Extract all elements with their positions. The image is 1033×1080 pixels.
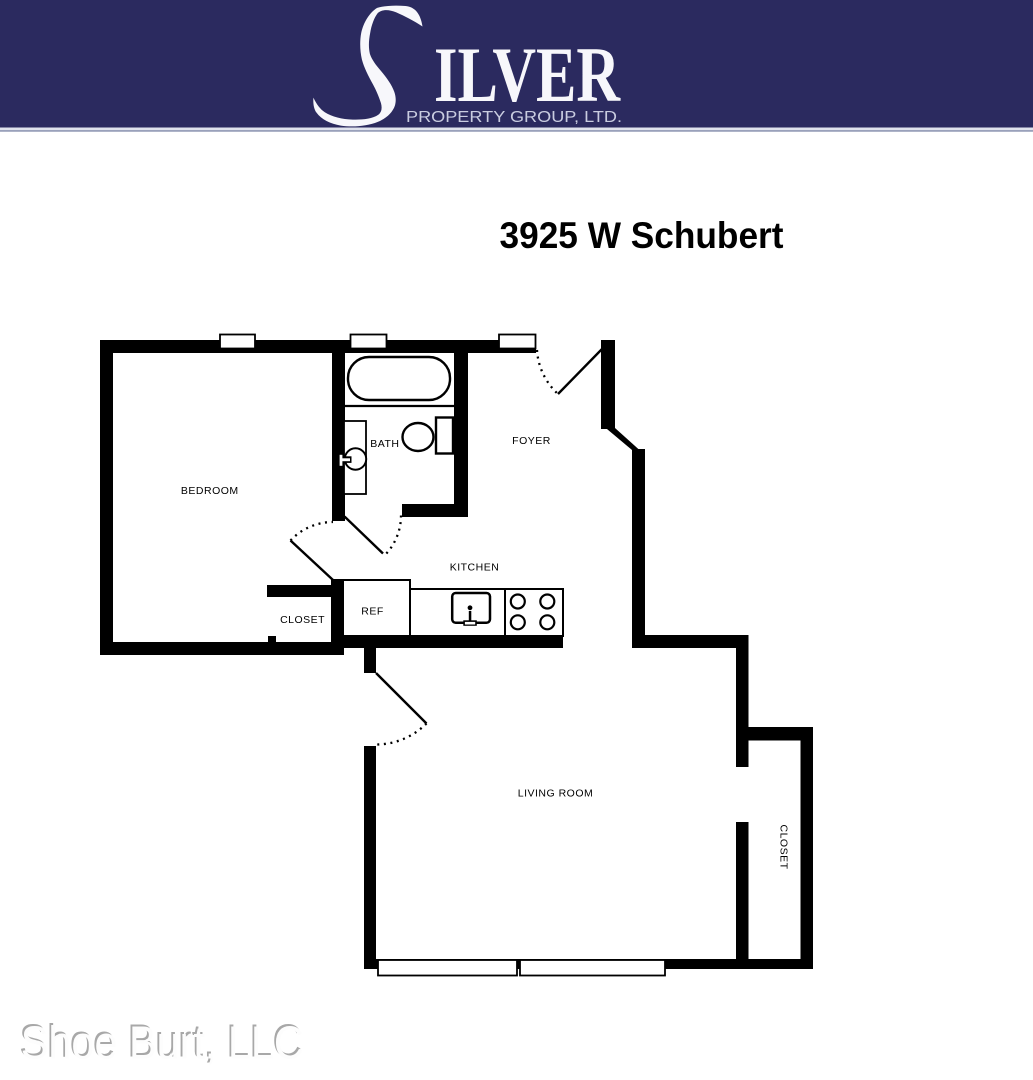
svg-text:REF: REF <box>361 606 384 618</box>
svg-text:BATH: BATH <box>370 438 399 450</box>
svg-text:FOYER: FOYER <box>512 435 551 447</box>
svg-text:Shoe Burt, LLC: Shoe Burt, LLC <box>21 1016 304 1068</box>
svg-text:PROPERTY GROUP, LTD.: PROPERTY GROUP, LTD. <box>406 109 622 126</box>
svg-text:ILVER: ILVER <box>434 31 621 118</box>
svg-text:LIVING ROOM: LIVING ROOM <box>518 788 594 800</box>
svg-text:BEDROOM: BEDROOM <box>181 485 239 497</box>
svg-text:3925 W Schubert: 3925 W Schubert <box>500 215 784 256</box>
svg-text:CLOSET: CLOSET <box>778 824 790 869</box>
svg-text:KITCHEN: KITCHEN <box>450 562 500 574</box>
svg-text:CLOSET: CLOSET <box>280 614 325 626</box>
